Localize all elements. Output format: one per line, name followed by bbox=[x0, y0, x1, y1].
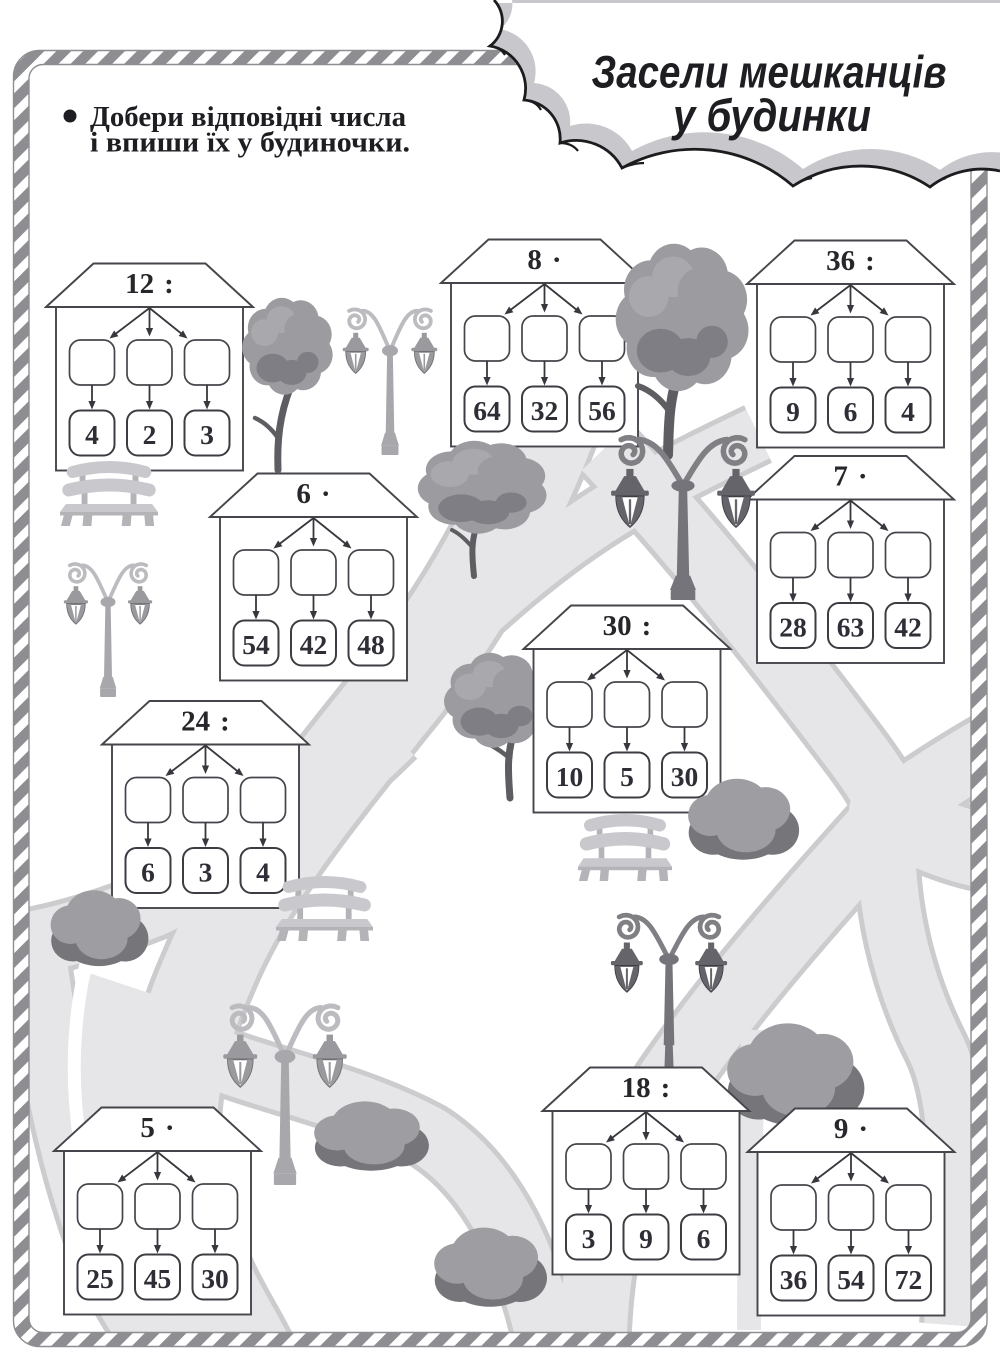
svg-text:30:: 30: bbox=[603, 610, 652, 642]
svg-text:42: 42 bbox=[300, 629, 328, 660]
svg-text:64: 64 bbox=[473, 395, 501, 426]
svg-text:4: 4 bbox=[85, 419, 99, 450]
svg-text:30: 30 bbox=[671, 761, 699, 792]
svg-text:48: 48 bbox=[357, 629, 385, 660]
svg-text:63: 63 bbox=[837, 612, 865, 643]
svg-text:4: 4 bbox=[256, 857, 270, 888]
svg-text:36:: 36: bbox=[826, 245, 875, 277]
svg-text:і впиши їх у будиночки.: і впиши їх у будиночки. bbox=[90, 127, 410, 159]
svg-text:36: 36 bbox=[780, 1264, 808, 1295]
svg-text:у будинки: у будинки bbox=[671, 90, 871, 141]
svg-text:25: 25 bbox=[86, 1263, 114, 1294]
svg-text:42: 42 bbox=[894, 612, 922, 643]
svg-text:9: 9 bbox=[639, 1223, 653, 1254]
svg-text:30: 30 bbox=[201, 1263, 229, 1294]
svg-text:12:: 12: bbox=[125, 268, 174, 300]
svg-text:3: 3 bbox=[582, 1223, 596, 1254]
svg-text:54: 54 bbox=[242, 629, 270, 660]
svg-text:32: 32 bbox=[531, 395, 559, 426]
svg-text:6: 6 bbox=[697, 1223, 711, 1254]
svg-text:28: 28 bbox=[779, 612, 807, 643]
svg-text:54: 54 bbox=[837, 1264, 865, 1295]
svg-text:10: 10 bbox=[556, 761, 584, 792]
svg-text:72: 72 bbox=[895, 1264, 923, 1295]
svg-text:18:: 18: bbox=[622, 1072, 671, 1104]
svg-text:6: 6 bbox=[141, 857, 155, 888]
svg-text:4: 4 bbox=[901, 396, 915, 427]
svg-text:2: 2 bbox=[143, 419, 157, 450]
svg-text:45: 45 bbox=[144, 1263, 172, 1294]
svg-text:3: 3 bbox=[199, 857, 213, 888]
svg-text:56: 56 bbox=[588, 395, 616, 426]
svg-text:9: 9 bbox=[786, 396, 800, 427]
svg-text:24:: 24: bbox=[181, 706, 230, 738]
svg-text:6: 6 bbox=[844, 396, 858, 427]
svg-text:3: 3 bbox=[200, 419, 214, 450]
svg-text:5: 5 bbox=[620, 761, 634, 792]
